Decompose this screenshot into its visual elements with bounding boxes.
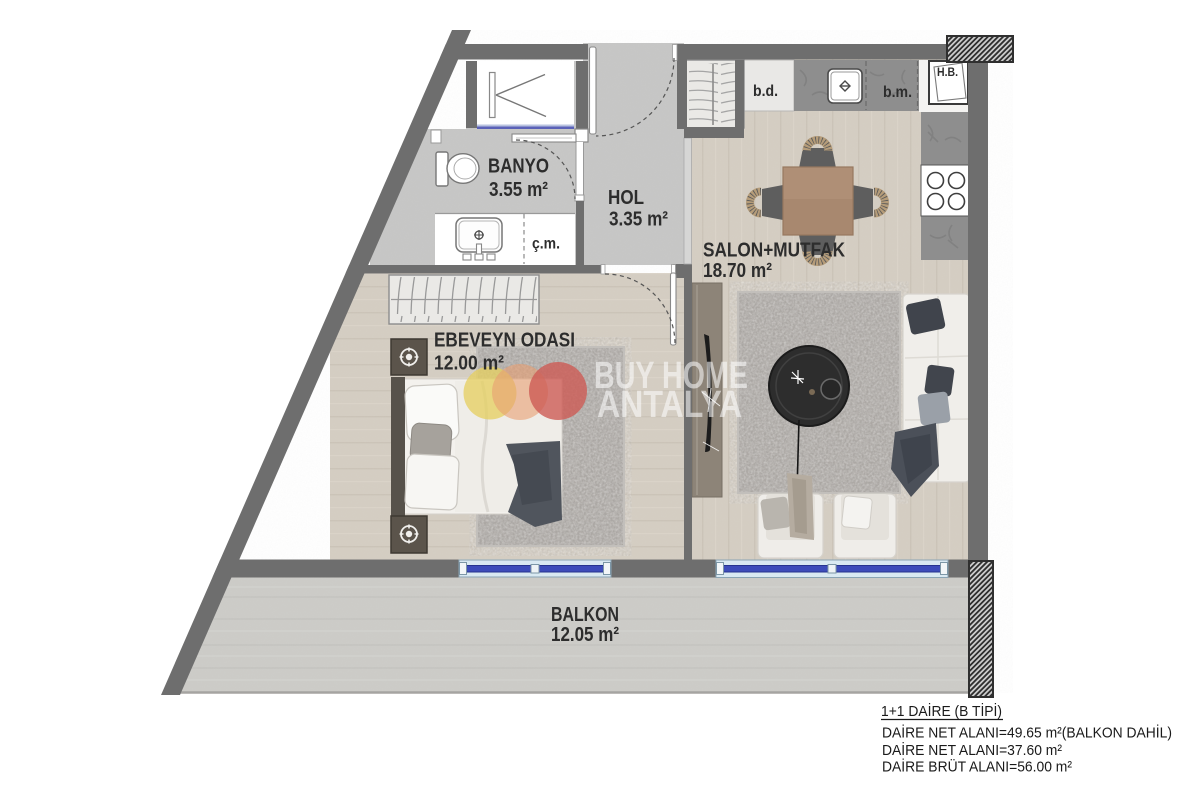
svg-text:DAİRE NET ALANI=49.65 m²(BALKO: DAİRE NET ALANI=49.65 m²(BALKON DAHİL) bbox=[882, 724, 1172, 742]
svg-text:BALKON: BALKON bbox=[551, 604, 619, 626]
svg-text:1+1 DAİRE (B TİPİ): 1+1 DAİRE (B TİPİ) bbox=[881, 702, 1002, 720]
svg-text:HOL: HOL bbox=[608, 187, 644, 209]
svg-text:BANYO: BANYO bbox=[488, 156, 549, 178]
svg-text:H.B.: H.B. bbox=[937, 65, 958, 79]
svg-text:12.05 m²: 12.05 m² bbox=[551, 624, 619, 646]
svg-text:ç.m.: ç.m. bbox=[532, 236, 560, 253]
svg-text:18.70 m²: 18.70 m² bbox=[703, 260, 772, 282]
svg-text:b.d.: b.d. bbox=[753, 83, 778, 100]
svg-text:12.00 m²: 12.00 m² bbox=[434, 353, 504, 375]
svg-text:SALON+MUTFAK: SALON+MUTFAK bbox=[703, 240, 845, 262]
svg-text:EBEVEYN ODASI: EBEVEYN ODASI bbox=[434, 330, 575, 352]
svg-text:3.55 m²: 3.55 m² bbox=[489, 179, 548, 201]
svg-text:DAİRE NET ALANI=37.60 m²: DAİRE NET ALANI=37.60 m² bbox=[882, 741, 1062, 759]
svg-text:DAİRE BRÜT ALANI=56.00 m²: DAİRE BRÜT ALANI=56.00 m² bbox=[882, 758, 1072, 776]
svg-text:ANTALYA: ANTALYA bbox=[597, 384, 742, 426]
svg-text:b.m.: b.m. bbox=[883, 84, 912, 101]
svg-text:3.35 m²: 3.35 m² bbox=[609, 209, 668, 231]
